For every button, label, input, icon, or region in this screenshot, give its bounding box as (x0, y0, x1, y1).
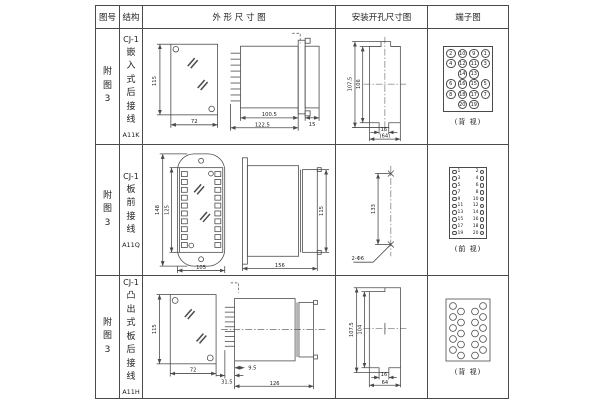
screw-marks (185, 309, 206, 343)
terminal-circle: 9 (469, 49, 479, 59)
terminal-circle (480, 204, 485, 209)
dim-label: 31.5 (221, 379, 232, 385)
terminal-cell-a11k: 2109141211314136161558181772019 (背 视) (428, 29, 508, 145)
model-label: CJ-1 (123, 35, 139, 44)
terminal-number: 8 (476, 190, 479, 195)
header-outline-dims: 外 形 尺 寸 图 (143, 6, 336, 29)
terminal-number: 18 (473, 224, 479, 229)
outline-drawing-cell-a11k: 115 72 100.5 (143, 29, 336, 145)
terminal-circle: 7 (481, 90, 491, 100)
terminal-cell-a11h: (背 视) (428, 276, 508, 398)
terminal-strip: 1234567891011121314151617181920 (449, 167, 487, 239)
dim-label: (64) (379, 133, 390, 139)
terminal-number: 7 (458, 190, 461, 195)
side-view: 100.5 122.5 15 (231, 33, 320, 130)
terminal-view-label: (前 视) (455, 244, 482, 254)
dim-label: 122.5 (255, 122, 270, 128)
terminal-number: 20 (473, 231, 479, 236)
dim-label: 16 (380, 126, 387, 132)
terminal-circle: 11 (469, 59, 479, 69)
terminal-grid: 2109141211314136161558181772019 (443, 46, 493, 112)
mounting-drawing-cell-a11h: 107.5 104 16 64 (336, 276, 428, 398)
dim-label: 64 (381, 380, 388, 386)
terminal-strip-left (181, 172, 187, 248)
terminal-row: 1413 (446, 69, 490, 79)
figure-no-cell: 附图3 (96, 29, 120, 145)
structure-cell: CJ-1 凸出式板后接线 A11H (120, 276, 143, 398)
screw-marks (194, 184, 210, 221)
terminal-number: 11 (458, 203, 464, 208)
dim-label: 15 (309, 121, 316, 127)
terminal-number: 16 (473, 217, 479, 222)
terminal-circles (450, 302, 487, 358)
structure-cell: CJ-1 板前接线 A11Q (120, 145, 143, 276)
terminal-circle (452, 183, 457, 188)
mounting-drawing-cell-a11q: 133 2-Φ6 (336, 145, 428, 276)
terminal-view-label: (背 视) (455, 117, 482, 127)
dim-label: 107.5 (347, 76, 353, 91)
terminal-circle: 20 (458, 100, 468, 110)
mounting-drawing-a11q: 133 2-Φ6 (337, 146, 427, 274)
terminal-circle: 1 (481, 49, 491, 59)
figure-no-label: 附图3 (101, 190, 114, 231)
screw-marks (188, 58, 208, 90)
side-view: 9.5 31.5 126 (216, 283, 326, 389)
terminal-circle (452, 210, 457, 215)
structure-label: 板前接线 (125, 184, 138, 238)
dim-label: 100.5 (262, 111, 277, 117)
terminal-number: 5 (458, 183, 461, 188)
terminal-circle: 3 (481, 59, 491, 69)
dim-label: 106 (355, 79, 361, 89)
dim-label: 115 (152, 324, 158, 334)
dim-label: 115 (152, 75, 158, 85)
terminal-row: 616155 (446, 79, 490, 89)
terminal-circle: 10 (458, 49, 468, 59)
terminal-row: 818177 (446, 90, 490, 100)
terminal-number: 2 (476, 169, 479, 174)
header-mounting-holes: 安装开孔尺寸图 (336, 6, 428, 29)
dim-label: 9.5 (248, 366, 256, 372)
mounting-drawing-cell-a11k: 107.5 106 16 (64) (336, 29, 428, 145)
terminal-circle: 15 (469, 79, 479, 89)
terminal-strip-row: 12 (452, 169, 484, 174)
terminal-circle (480, 183, 485, 188)
outline-drawing-a11q: 148 125 105 156 (143, 146, 335, 274)
terminal-number: 3 (458, 176, 461, 181)
model-label: CJ-1 (123, 172, 139, 181)
terminal-row: 412113 (446, 59, 490, 69)
structure-code-label: A11H (122, 388, 140, 396)
terminal-circle (452, 190, 457, 195)
terminal-circle (452, 170, 457, 175)
dim-label: 115 (319, 206, 325, 216)
figure-no-label: 附图3 (101, 317, 114, 358)
terminal-number: 15 (458, 217, 464, 222)
dim-label: 133 (371, 204, 377, 214)
terminal-strip-row: 1920 (452, 231, 484, 236)
dim-label: 126 (270, 381, 280, 387)
terminal-circle: 5 (481, 79, 491, 89)
terminal-number: 1 (458, 169, 461, 174)
mounting-drawing-a11k: 107.5 106 16 (64) (337, 31, 427, 143)
outline-drawing-a11k: 115 72 100.5 (143, 31, 335, 143)
terminal-cell-a11q: 1234567891011121314151617181920 (前 视) (428, 145, 508, 276)
scanned-spec-page: 图号 结构 外 形 尺 寸 图 安装开孔尺寸图 端子图 附图3 CJ-1 嵌入式… (0, 0, 600, 400)
dim-label: 107.5 (349, 322, 355, 337)
terminal-circle: 4 (446, 59, 456, 69)
model-label: CJ-1 (123, 278, 139, 287)
dim-label: 125 (165, 205, 171, 215)
terminal-circle: 8 (446, 90, 456, 100)
terminal-diagram-zigzag (445, 298, 491, 362)
terminal-row: 2019 (446, 100, 490, 110)
side-view: 156 115 (242, 158, 329, 271)
terminal-circle (480, 231, 485, 236)
structure-label: 嵌入式后接线 (125, 47, 138, 128)
terminal-strip-row: 1314 (452, 210, 484, 215)
terminal-number: 9 (458, 197, 461, 202)
terminal-circle (480, 224, 485, 229)
terminal-circle (452, 176, 457, 181)
terminal-circle (452, 217, 457, 222)
relay-spec-table: 图号 结构 外 形 尺 寸 图 安装开孔尺寸图 端子图 附图3 CJ-1 嵌入式… (95, 5, 509, 399)
terminal-circle (480, 197, 485, 202)
header-terminal-diagram: 端子图 (428, 6, 508, 29)
front-view: 148 125 105 (155, 154, 224, 273)
structure-code-label: A11K (123, 131, 140, 139)
terminal-strip-row: 56 (452, 183, 484, 188)
figure-no-cell: 附图3 (96, 276, 120, 398)
mounting-drawing-a11h: 107.5 104 16 64 (337, 278, 427, 396)
terminal-number: 13 (458, 210, 464, 215)
terminal-circle (452, 197, 457, 202)
terminal-number: 17 (458, 224, 464, 229)
outline-drawing-a11h: 115 72 9.5 (143, 278, 335, 396)
terminal-number: 6 (476, 183, 479, 188)
terminal-circle: 2 (446, 49, 456, 59)
terminal-circle (480, 170, 485, 175)
header-figure-no: 图号 (96, 6, 120, 29)
terminal-circle (452, 224, 457, 229)
figure-no-label: 附图3 (101, 66, 114, 107)
front-view: 115 72 (152, 44, 218, 128)
terminal-strip-row: 78 (452, 190, 484, 195)
structure-code-label: A11Q (122, 241, 140, 249)
dim-label: 72 (191, 118, 198, 124)
terminal-circle: 13 (469, 69, 479, 79)
terminal-circle: 6 (446, 79, 456, 89)
terminal-circle (480, 190, 485, 195)
dim-label: 105 (196, 265, 206, 271)
dim-label: 148 (155, 205, 161, 215)
terminal-number: 10 (473, 197, 479, 202)
front-view: 115 72 (152, 295, 216, 377)
terminal-view-label: (背 视) (455, 367, 482, 377)
terminal-strip-row: 1718 (452, 224, 484, 229)
terminal-strip-row: 1112 (452, 203, 484, 208)
terminal-strip-row: 34 (452, 176, 484, 181)
terminal-circle: 12 (458, 59, 468, 69)
terminal-circle: 16 (458, 79, 468, 89)
outline-drawing-cell-a11h: 115 72 9.5 (143, 276, 336, 398)
figure-no-cell: 附图3 (96, 145, 120, 276)
terminal-circle (480, 210, 485, 215)
dim-label: 16 (380, 372, 387, 378)
terminal-circle (452, 204, 457, 209)
dim-label: 156 (275, 263, 285, 269)
terminal-circle: 18 (458, 90, 468, 100)
outline-drawing-cell-a11q: 148 125 105 156 (143, 145, 336, 276)
terminal-number: 14 (473, 210, 479, 215)
header-structure: 结构 (120, 6, 143, 29)
dim-label: 72 (190, 368, 197, 374)
terminal-circle (480, 176, 485, 181)
terminal-strip-row: 910 (452, 197, 484, 202)
terminal-circle: 17 (469, 90, 479, 100)
terminal-row: 21091 (446, 49, 490, 59)
terminal-strip-row: 1516 (452, 217, 484, 222)
terminal-strip-right (215, 172, 221, 248)
terminal-number: 19 (458, 231, 464, 236)
terminal-circle (480, 217, 485, 222)
terminal-number: 4 (476, 176, 479, 181)
terminal-number: 12 (473, 203, 479, 208)
dim-label: 104 (357, 325, 363, 335)
hole-spec-label: 2-Φ6 (351, 256, 364, 262)
structure-cell: CJ-1 嵌入式后接线 A11K (120, 29, 143, 145)
terminal-circle (452, 231, 457, 236)
terminal-circle: 19 (469, 100, 479, 110)
terminal-circle: 14 (458, 69, 468, 79)
structure-label: 凸出式板后接线 (125, 290, 138, 385)
